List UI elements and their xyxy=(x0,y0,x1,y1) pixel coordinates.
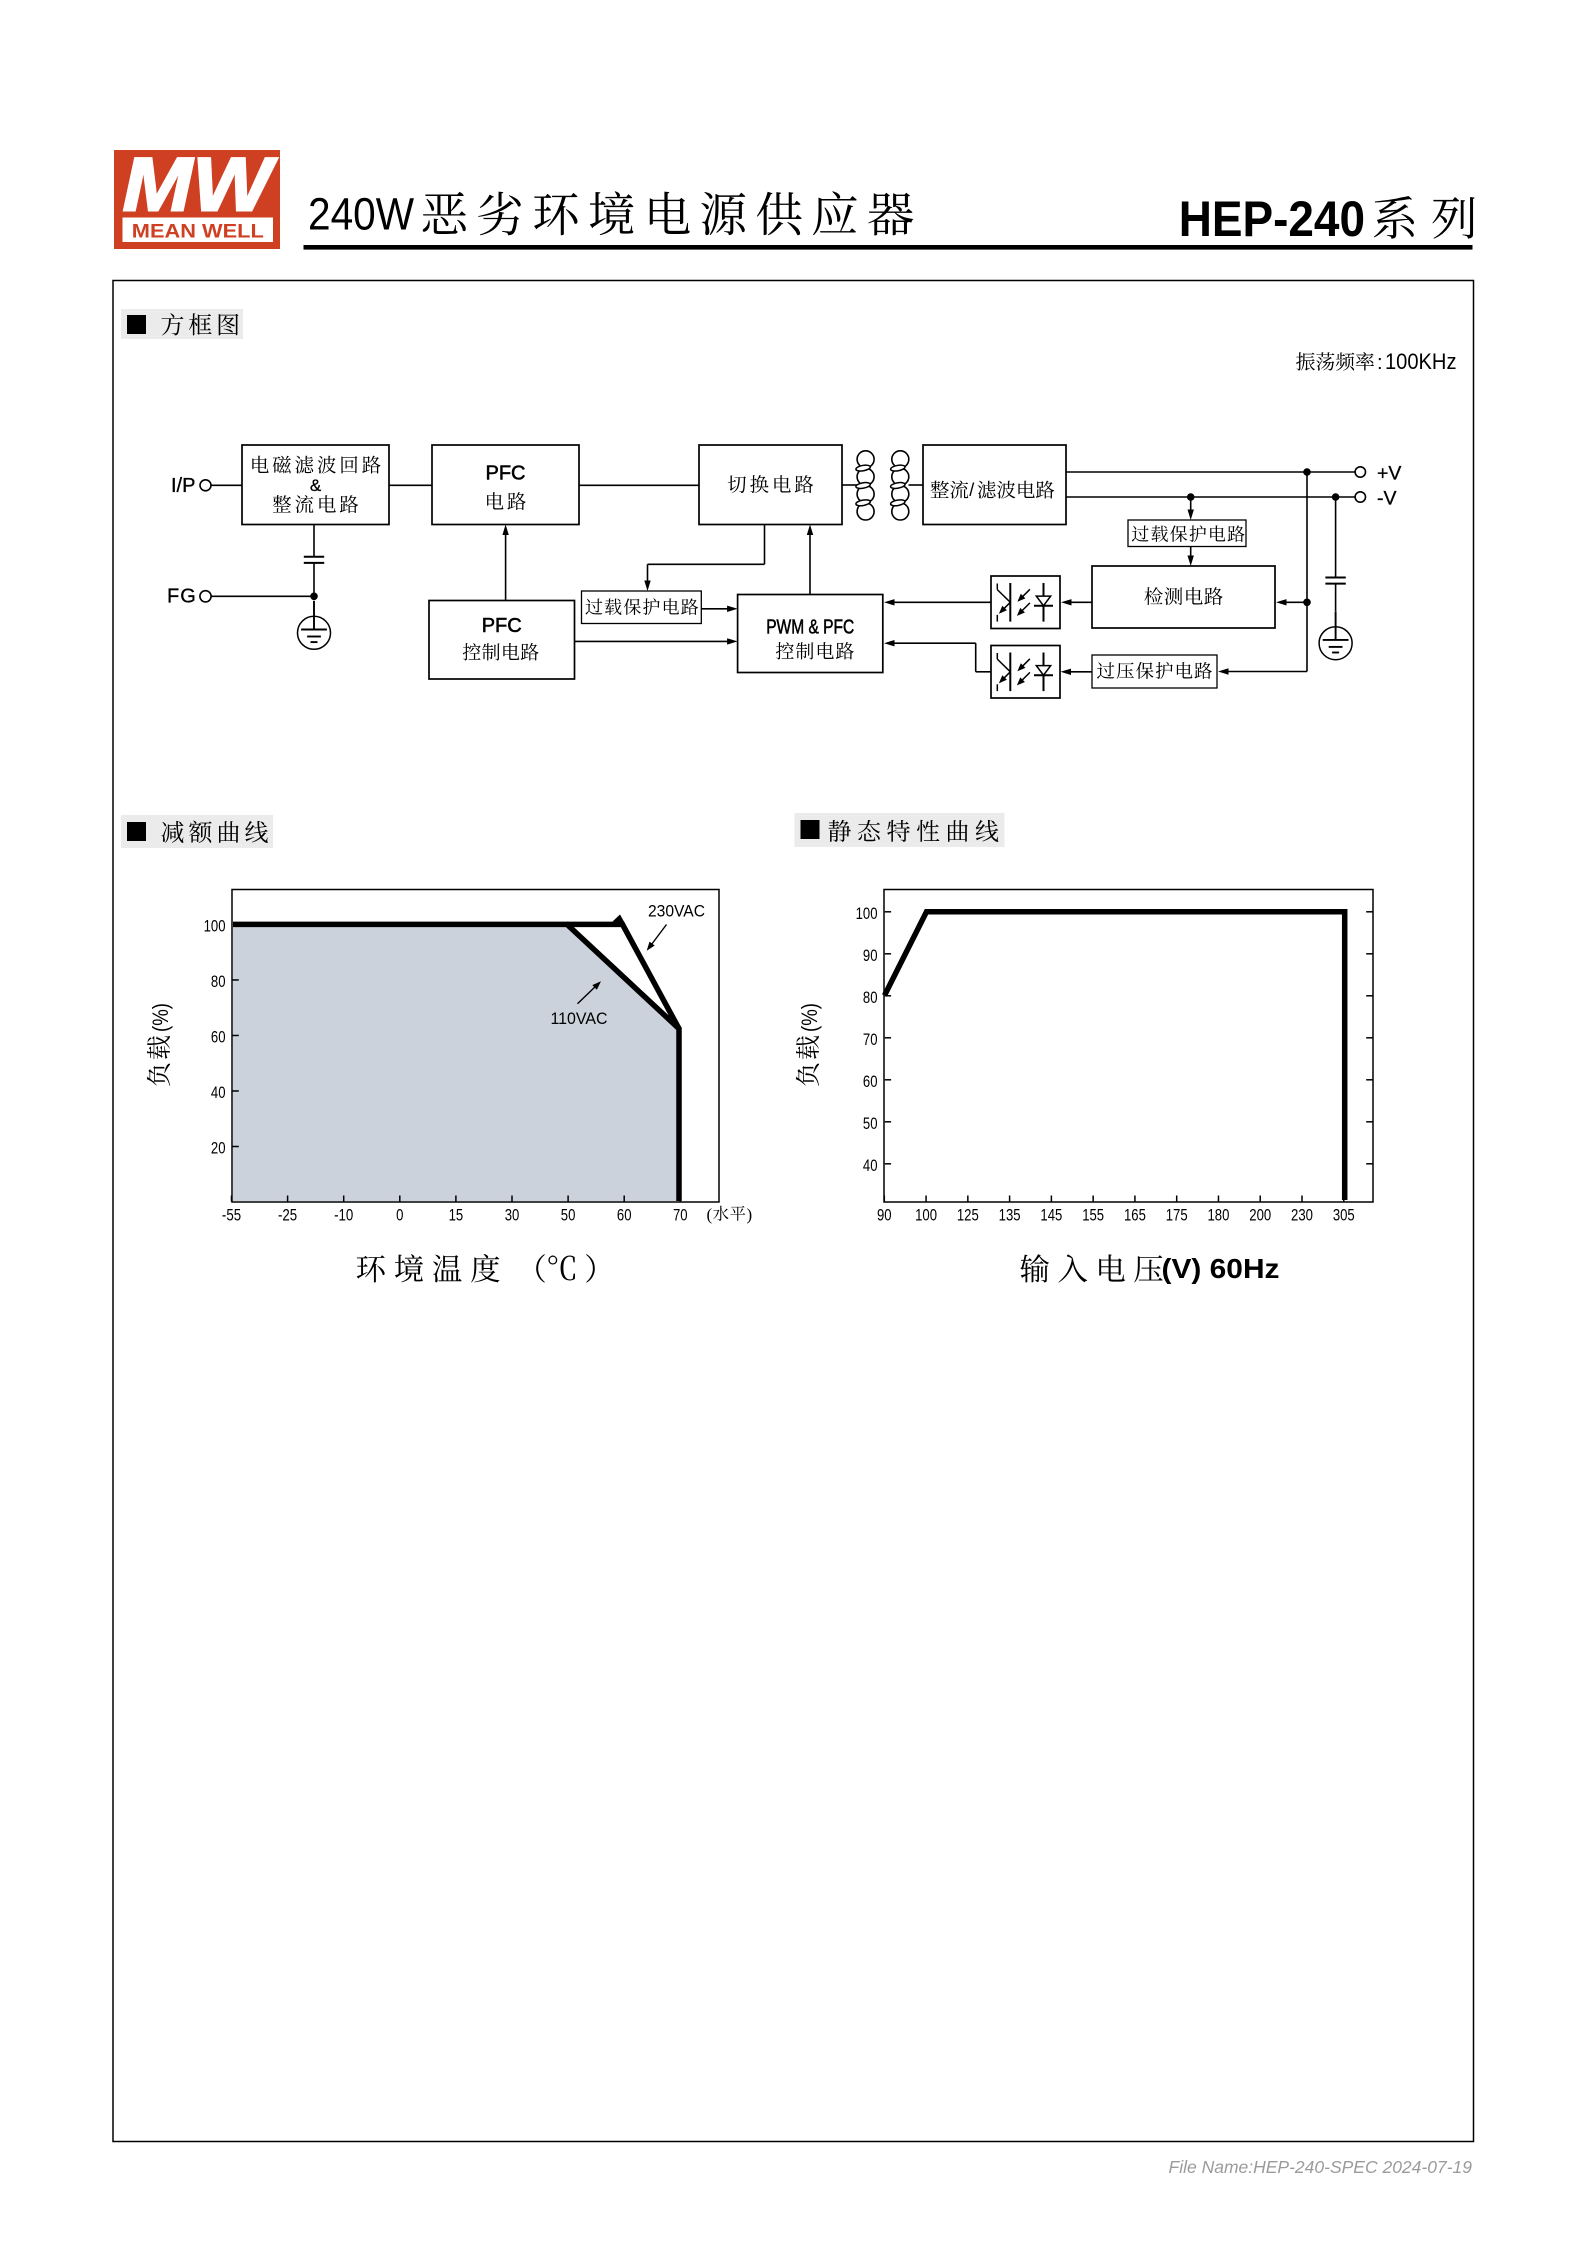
svg-text:100: 100 xyxy=(856,905,878,923)
svg-text:FG: FG xyxy=(167,586,197,608)
svg-text:MW: MW xyxy=(123,143,279,228)
svg-text:&: & xyxy=(310,476,322,495)
svg-text:50: 50 xyxy=(561,1207,576,1225)
svg-text:100: 100 xyxy=(915,1207,937,1225)
svg-text:100KHz: 100KHz xyxy=(1385,349,1457,374)
svg-text:80: 80 xyxy=(211,973,226,991)
svg-text:240W: 240W xyxy=(308,189,414,240)
svg-text:135: 135 xyxy=(999,1207,1021,1225)
svg-text:PFC: PFC xyxy=(486,463,526,485)
svg-text:-55: -55 xyxy=(222,1207,241,1225)
svg-text:-10: -10 xyxy=(334,1207,353,1225)
svg-text:0: 0 xyxy=(396,1207,403,1225)
svg-text:175: 175 xyxy=(1166,1207,1188,1225)
svg-text::: : xyxy=(1377,352,1383,374)
svg-text:): ) xyxy=(747,1205,753,1224)
svg-text:PWM & PFC: PWM & PFC xyxy=(766,617,854,639)
svg-text:305: 305 xyxy=(1333,1207,1355,1225)
svg-text:30: 30 xyxy=(505,1207,520,1225)
svg-text:(%): (%) xyxy=(797,1003,822,1032)
svg-text:-25: -25 xyxy=(278,1207,297,1225)
svg-text:20: 20 xyxy=(211,1139,226,1157)
svg-text:60: 60 xyxy=(863,1073,878,1091)
svg-text:230: 230 xyxy=(1291,1207,1313,1225)
svg-text:90: 90 xyxy=(877,1207,892,1225)
svg-text:60: 60 xyxy=(211,1028,226,1046)
svg-text:(: ( xyxy=(707,1205,713,1224)
svg-text:HEP-240: HEP-240 xyxy=(1179,191,1365,247)
svg-text:100: 100 xyxy=(204,917,226,935)
svg-text:165: 165 xyxy=(1124,1207,1146,1225)
svg-text:40: 40 xyxy=(863,1157,878,1175)
svg-text:70: 70 xyxy=(863,1031,878,1049)
svg-text:230VAC: 230VAC xyxy=(648,902,705,921)
svg-text:/: / xyxy=(969,480,974,500)
svg-text:(%): (%) xyxy=(148,1003,173,1032)
svg-text:40: 40 xyxy=(211,1084,226,1102)
svg-text:15: 15 xyxy=(449,1207,464,1225)
svg-text:70: 70 xyxy=(673,1207,688,1225)
svg-text:180: 180 xyxy=(1208,1207,1230,1225)
svg-text:155: 155 xyxy=(1082,1207,1104,1225)
svg-text:200: 200 xyxy=(1249,1207,1271,1225)
svg-text:File Name:HEP-240-SPEC 2024-07: File Name:HEP-240-SPEC 2024-07-19 xyxy=(1169,2157,1473,2177)
svg-text:+V: +V xyxy=(1377,463,1401,485)
svg-text:90: 90 xyxy=(863,947,878,965)
svg-text:80: 80 xyxy=(863,989,878,1007)
svg-text:-V: -V xyxy=(1377,488,1397,510)
svg-text:110VAC: 110VAC xyxy=(551,1009,608,1028)
svg-text:145: 145 xyxy=(1040,1207,1062,1225)
svg-text:60: 60 xyxy=(617,1207,632,1225)
svg-text:PFC: PFC xyxy=(482,615,522,637)
svg-text:MEAN WELL: MEAN WELL xyxy=(132,221,264,243)
svg-text:50: 50 xyxy=(863,1115,878,1133)
svg-text:125: 125 xyxy=(957,1207,979,1225)
svg-text:(V) 60Hz: (V) 60Hz xyxy=(1162,1253,1280,1284)
svg-text:I/P: I/P xyxy=(171,475,195,497)
